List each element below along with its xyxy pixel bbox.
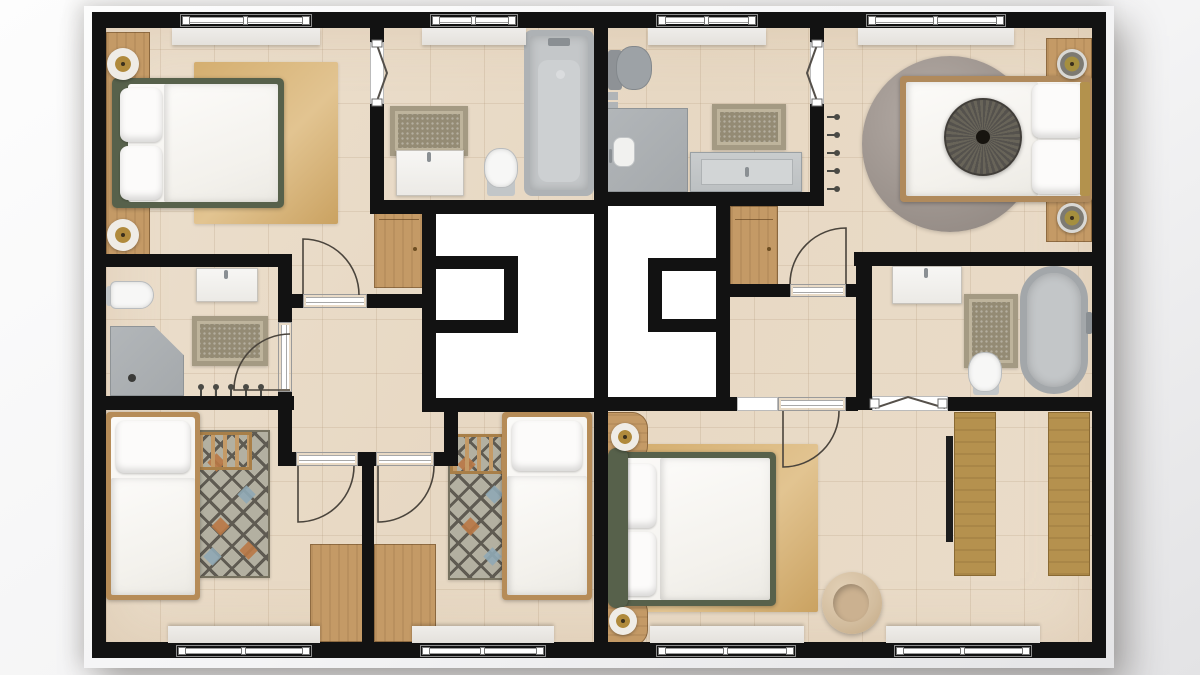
door-arc: [298, 466, 354, 522]
door-arc: [234, 334, 290, 390]
door-jamb: [812, 40, 822, 47]
folding-door-icon: [807, 45, 817, 101]
door-jamb: [372, 99, 382, 106]
door-jamb: [372, 40, 382, 47]
door-jamb: [938, 399, 947, 408]
door-arc: [783, 411, 839, 467]
door-arc: [790, 228, 846, 284]
folding-door-icon: [875, 397, 945, 408]
door-arc: [303, 239, 359, 295]
floor-plan-canvas: [0, 0, 1200, 675]
folding-door-icon: [377, 45, 387, 101]
door-jamb: [870, 399, 879, 408]
door-swing-overlay: [0, 0, 1200, 675]
door-jamb: [812, 99, 822, 106]
door-arc: [378, 466, 434, 522]
